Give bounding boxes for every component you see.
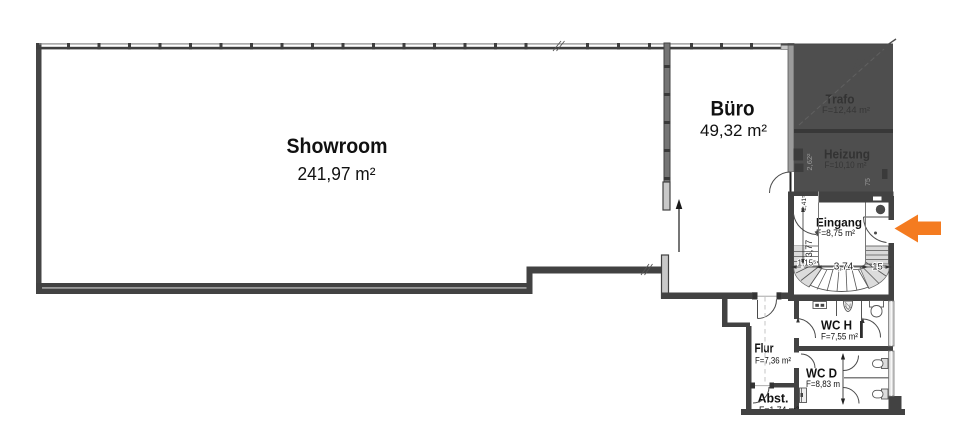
svg-text:F=7,36 m²: F=7,36 m² xyxy=(755,356,791,367)
svg-text:1,15⁵: 1,15⁵ xyxy=(798,259,817,268)
svg-text:WC H: WC H xyxy=(821,319,852,333)
svg-text:3,74: 3,74 xyxy=(834,262,854,273)
svg-text:Abst.: Abst. xyxy=(758,392,789,406)
svg-text:49,32 m²: 49,32 m² xyxy=(700,121,767,140)
svg-text:15: 15 xyxy=(872,262,883,273)
svg-text:2,41⁵: 2,41⁵ xyxy=(801,195,808,211)
svg-text:Büro: Büro xyxy=(711,98,755,121)
svg-text:2,62²: 2,62² xyxy=(805,153,814,171)
svg-text:75: 75 xyxy=(865,178,872,186)
svg-text:241,97 m²: 241,97 m² xyxy=(298,164,376,184)
svg-text:F=10,10 m²: F=10,10 m² xyxy=(825,160,867,170)
svg-text:Flur: Flur xyxy=(755,341,774,356)
svg-text:F=7,55 m²: F=7,55 m² xyxy=(821,332,858,343)
svg-text:Showroom: Showroom xyxy=(287,135,388,158)
svg-text:3,77: 3,77 xyxy=(804,240,814,258)
svg-text:F=8,75 m²: F=8,75 m² xyxy=(816,228,855,239)
svg-text:F=12,44 m²: F=12,44 m² xyxy=(822,105,870,115)
svg-text:F=8,83 m: F=8,83 m xyxy=(806,379,840,390)
